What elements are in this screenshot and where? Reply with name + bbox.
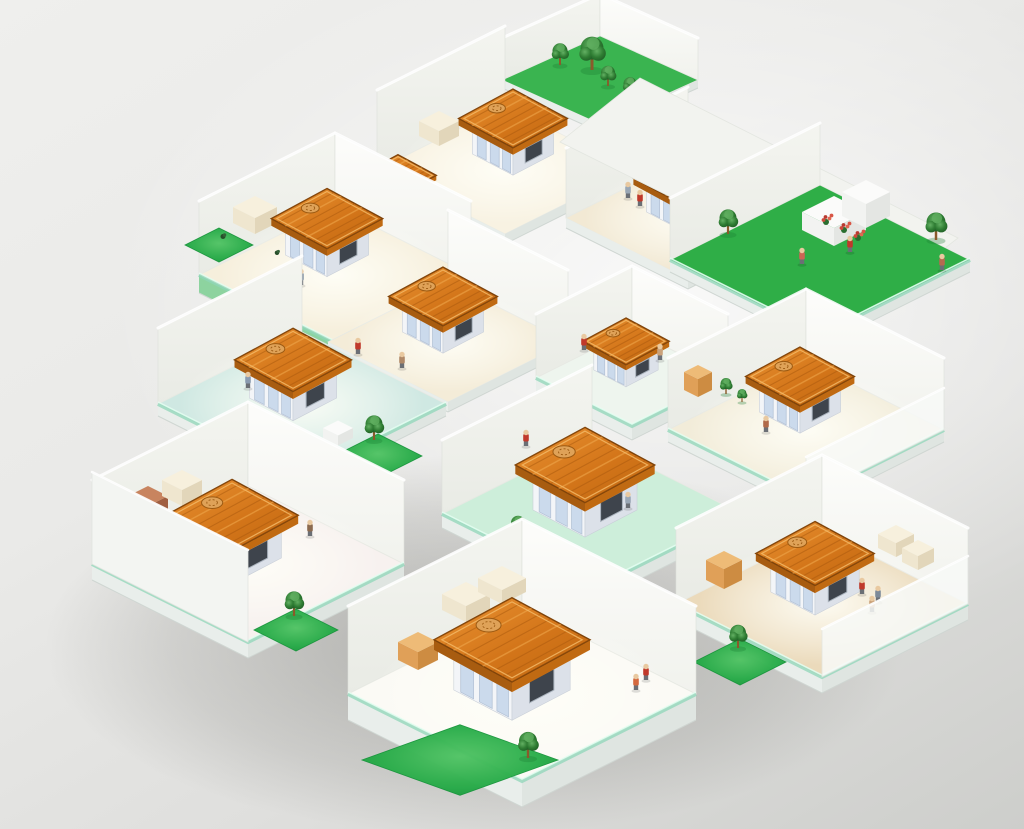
figure-legs	[400, 363, 404, 368]
figure-head	[847, 236, 852, 241]
tree	[926, 212, 948, 244]
roof-medallion	[553, 446, 575, 458]
figure-head	[355, 338, 360, 343]
roof-medallion	[476, 618, 501, 632]
figure-legs	[860, 589, 864, 594]
tree	[720, 378, 733, 397]
tree	[365, 415, 385, 444]
roof-medallion	[202, 497, 223, 509]
figure-legs	[658, 355, 662, 360]
figure-legs	[582, 345, 586, 350]
tree-foliage-highlight	[290, 592, 299, 601]
figure-head	[245, 372, 250, 377]
flower	[842, 223, 846, 227]
shrub-foliage	[277, 250, 280, 253]
figure-legs	[626, 193, 630, 198]
figure-head	[859, 578, 864, 583]
flower	[824, 215, 828, 219]
figure-legs	[800, 259, 804, 264]
tree-foliage-highlight	[587, 37, 600, 50]
tree	[285, 591, 305, 620]
figure-legs	[764, 427, 768, 432]
figure-head	[869, 596, 874, 601]
figure-legs	[626, 503, 630, 508]
figure-legs	[308, 531, 312, 536]
tree-foliage-highlight	[724, 378, 730, 384]
figure-legs	[356, 349, 360, 354]
roof-medallion	[301, 203, 319, 213]
figure-head	[307, 520, 312, 525]
figure-head	[637, 190, 642, 195]
tree-foliage-highlight	[605, 66, 613, 74]
figure-legs	[634, 685, 638, 690]
flower	[856, 231, 860, 235]
tree	[552, 43, 569, 68]
figure-head	[625, 182, 630, 187]
roof-medallion	[788, 537, 807, 547]
tree-foliage-highlight	[370, 416, 379, 425]
figure-head	[633, 674, 638, 679]
tree	[579, 37, 605, 75]
flower	[862, 230, 866, 234]
shrub-foliage	[223, 233, 227, 237]
tree-foliage-highlight	[557, 44, 565, 52]
tree	[518, 732, 539, 762]
flower	[848, 222, 852, 226]
figure-head	[581, 334, 586, 339]
figure-head	[875, 586, 880, 591]
figure-head	[799, 248, 804, 253]
figure-legs	[848, 247, 852, 252]
tree-foliage-highlight	[932, 213, 942, 223]
figure-head	[523, 430, 528, 435]
tree-foliage-highlight	[734, 625, 743, 634]
figure-legs	[638, 201, 642, 206]
roof-medallion	[488, 103, 505, 113]
figure-head	[625, 492, 630, 497]
tree	[737, 389, 747, 405]
flower	[830, 214, 834, 218]
roof-medallion	[266, 344, 285, 354]
figure-head	[643, 664, 648, 669]
building-world	[45, 0, 970, 829]
tree-foliage-highlight	[740, 389, 745, 394]
isometric-cutaway-building	[0, 0, 1024, 829]
figure-head	[657, 344, 662, 349]
tree-foliage-highlight	[524, 732, 534, 742]
roof-medallion	[418, 281, 435, 291]
tree	[719, 209, 739, 238]
figure-legs	[940, 265, 944, 270]
illustration-canvas	[0, 0, 1024, 829]
figure-legs	[246, 383, 250, 388]
roof-medallion	[606, 329, 620, 337]
figure-head	[399, 352, 404, 357]
figure-head	[939, 254, 944, 259]
figure-legs	[524, 441, 528, 446]
figure-head	[763, 416, 768, 421]
tree-foliage-highlight	[724, 210, 733, 219]
tree	[600, 66, 616, 90]
figure-legs	[644, 675, 648, 680]
tree	[729, 625, 747, 652]
roof-medallion	[775, 361, 792, 371]
